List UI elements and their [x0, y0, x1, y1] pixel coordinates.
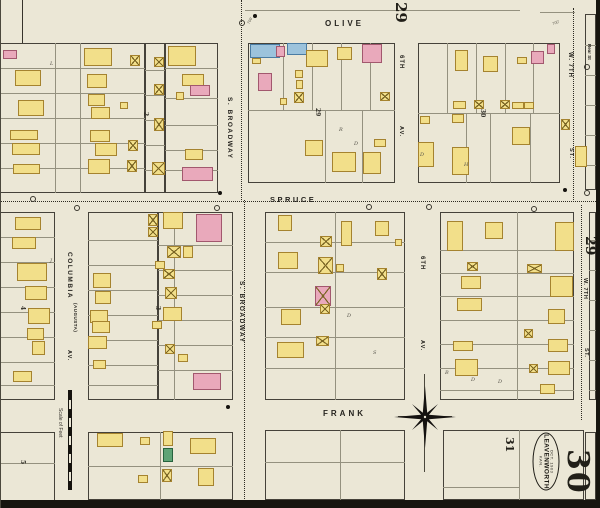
lot-line: [589, 300, 596, 301]
building-with-x: [318, 257, 333, 274]
building-with-x: [320, 236, 332, 247]
map-edge-mark: [22, 0, 23, 43]
building: [95, 291, 111, 304]
building: [483, 56, 498, 72]
building: [183, 246, 193, 258]
building-with-x: [128, 140, 138, 151]
street-label: AV.: [66, 350, 72, 361]
building: [15, 70, 41, 86]
building-with-x: [154, 84, 164, 95]
building: [178, 354, 188, 362]
sheet-number-large: 30: [560, 449, 595, 495]
street-label: FRANK: [323, 409, 366, 418]
building: [287, 43, 307, 55]
street-label: W. 7TH: [567, 52, 573, 78]
building: [12, 237, 36, 249]
publisher-stamp: OCT. 1903 LEAVENWORTH KAN.: [533, 433, 560, 491]
building: [453, 341, 473, 351]
street-label: (AUGUSTA): [73, 303, 78, 332]
building: [531, 51, 544, 64]
lot-line: [0, 68, 145, 69]
building: [461, 276, 481, 289]
building: [92, 321, 110, 333]
lot-line: [248, 110, 395, 111]
lot-line: [88, 385, 158, 386]
building: [305, 140, 323, 156]
building: [32, 341, 45, 355]
building-with-x: [130, 55, 140, 66]
building: [362, 44, 382, 63]
lot-line: [440, 273, 574, 274]
lot-line: [0, 362, 55, 363]
lot-line: [585, 135, 596, 136]
block-number: 2: [142, 112, 149, 116]
building: [140, 437, 150, 445]
building: [258, 73, 272, 91]
block-number: 29: [314, 108, 321, 116]
city-block: [265, 430, 405, 500]
block-number: 5: [19, 460, 26, 464]
building: [84, 48, 112, 66]
building: [95, 143, 117, 156]
building: [88, 159, 110, 174]
water-valve-dot: [218, 191, 222, 195]
building: [524, 102, 534, 109]
street-label: 6TH: [398, 55, 404, 69]
building: [12, 143, 40, 155]
building: [281, 309, 301, 325]
lot-line: [0, 118, 145, 119]
lot-line: [265, 307, 405, 308]
building: [25, 286, 47, 300]
building: [420, 116, 430, 124]
intersection-marker: [74, 205, 80, 211]
lot-line: [585, 105, 596, 106]
lot-line: [165, 98, 218, 99]
building: [575, 146, 587, 167]
building: [252, 58, 261, 64]
map-edge-left: [0, 0, 1, 508]
building-with-x: [152, 162, 165, 175]
building-with-x: [527, 264, 542, 273]
lot-line: [325, 110, 326, 183]
building: [193, 373, 221, 390]
building: [91, 107, 110, 119]
building: [10, 130, 38, 140]
building: [447, 221, 463, 251]
water-valve-dot: [226, 405, 230, 409]
building: [341, 221, 352, 246]
building: [485, 222, 503, 239]
street-label: OLIVE: [325, 19, 364, 28]
building: [547, 44, 555, 54]
building-with-x: [529, 364, 538, 373]
lot-line: [145, 95, 165, 96]
building-with-x: [294, 92, 304, 103]
street-label: 6TH: [419, 256, 425, 270]
building: [375, 221, 389, 236]
lot-line: [589, 330, 596, 331]
lot-line: [265, 337, 405, 338]
lot-line: [447, 43, 448, 113]
building-with-x: [162, 469, 172, 482]
dwelling-letter: R: [339, 127, 343, 133]
lot-line: [0, 385, 55, 386]
street-center-dotted-line: [241, 0, 242, 200]
building: [295, 70, 303, 78]
dwelling-letter: D: [420, 152, 424, 158]
adjacent-sheet-number-top: 29: [392, 2, 410, 23]
building: [152, 321, 162, 329]
lot-line: [88, 240, 158, 241]
building-with-x: [316, 336, 329, 346]
street-center-dotted-line: [244, 200, 245, 505]
building: [512, 102, 524, 109]
building-with-x: [524, 329, 533, 338]
intersection-marker: [584, 64, 590, 70]
intersection-marker: [584, 190, 590, 196]
dwelling-letter: J: [50, 258, 52, 264]
building: [548, 339, 568, 352]
street-label: S. BROADWAY: [238, 281, 245, 344]
building: [280, 98, 287, 105]
building: [455, 50, 468, 71]
building-with-x: [148, 227, 158, 237]
building-with-x: [561, 119, 570, 130]
building: [90, 130, 110, 142]
building: [93, 360, 106, 369]
lot-line: [165, 125, 218, 126]
building-with-x: [154, 57, 164, 67]
dimension-annotation: 700': [246, 16, 254, 25]
building: [163, 212, 183, 229]
building-with-x: [127, 160, 137, 172]
sanborn-map-canvas: 29 29 31 30 OCT. 1903 LEAVENWORTH KAN. S…: [0, 0, 600, 508]
building: [336, 264, 344, 272]
lot-line: [245, 10, 520, 11]
block-number-31: 31: [503, 437, 516, 452]
street-label: ST.: [583, 348, 589, 357]
stamp-state: KAN.: [539, 456, 543, 467]
building: [278, 252, 298, 269]
street-center-dotted-line: [573, 8, 574, 200]
dwelling-letter: L: [50, 61, 53, 67]
lot-line: [265, 242, 405, 243]
lot-line: [519, 430, 520, 500]
building-with-x: [500, 100, 510, 109]
building-with-x: [377, 268, 387, 280]
stamp-city: LEAVENWORTH: [543, 434, 550, 489]
building: [88, 94, 105, 106]
building-with-x: [163, 269, 175, 279]
building: [190, 85, 210, 96]
building: [27, 328, 44, 340]
lot-line: [265, 462, 405, 463]
scale-label: Scale of Feet: [57, 408, 63, 437]
building: [185, 149, 203, 160]
building: [332, 152, 356, 172]
building: [277, 342, 304, 358]
building-with-x: [165, 344, 175, 354]
city-block: [0, 432, 55, 508]
building: [138, 475, 148, 483]
building-with-x: [467, 262, 478, 271]
building-with-x: [380, 92, 390, 101]
street-label: SPRUCE: [270, 195, 316, 204]
block-number: 30: [479, 109, 486, 117]
street-label: ST.: [568, 148, 574, 159]
building-with-x: [315, 286, 331, 306]
building-with-x: [148, 214, 158, 226]
building: [163, 431, 173, 446]
building: [18, 100, 44, 116]
street-label: COLUMBIA: [66, 252, 73, 299]
building: [363, 152, 381, 174]
building: [93, 273, 111, 288]
dimension-annotation: 700': [551, 19, 560, 26]
street-label: S. BROADWAY: [226, 97, 233, 160]
building: [97, 433, 123, 447]
building: [182, 167, 213, 181]
building: [395, 239, 402, 246]
lot-line: [165, 68, 218, 69]
building-with-x: [320, 304, 330, 314]
lot-line: [589, 390, 596, 391]
map-edge-bottom: [0, 500, 600, 508]
building: [548, 309, 565, 324]
building: [13, 371, 32, 382]
building: [452, 114, 464, 123]
street-label: AV.: [419, 340, 425, 351]
intersection-marker: [366, 204, 372, 210]
building: [455, 359, 478, 376]
building: [276, 46, 285, 57]
scale-bar: [68, 390, 72, 490]
dwelling-letter: B: [445, 370, 449, 376]
building: [457, 298, 482, 311]
building: [28, 308, 50, 324]
intersection-marker: [426, 204, 432, 210]
dwelling-letter: H: [464, 162, 468, 168]
building: [296, 80, 303, 89]
lot-line: [443, 487, 519, 488]
building: [15, 217, 41, 230]
building: [3, 50, 17, 59]
building: [550, 276, 573, 297]
lot-line: [158, 370, 233, 371]
building: [278, 215, 292, 231]
building: [555, 222, 574, 251]
building-with-x: [474, 100, 484, 109]
lot-line: [585, 75, 596, 76]
building: [452, 147, 469, 175]
intersection-marker: [239, 20, 245, 26]
lot-line: [88, 265, 158, 266]
map-edge-right: [596, 0, 600, 508]
lot-line: [145, 145, 165, 146]
building: [512, 127, 530, 145]
street-label: AV.: [398, 126, 404, 137]
building: [163, 307, 182, 321]
lot-line: [530, 113, 531, 183]
intersection-marker: [214, 205, 220, 211]
stamp-date: OCT. 1903: [550, 450, 554, 474]
intersection-marker: [30, 196, 36, 202]
lot-line: [335, 212, 336, 400]
lot-line: [174, 212, 175, 400]
lot-line: [589, 360, 596, 361]
building: [13, 164, 40, 174]
building-with-x: [165, 287, 177, 299]
building: [168, 46, 196, 66]
water-valve-dot: [253, 14, 257, 18]
lot-line: [0, 463, 55, 464]
building: [155, 261, 165, 269]
dwelling-letter: D: [354, 141, 358, 147]
lot-line: [265, 368, 405, 369]
lot-line: [418, 113, 560, 114]
lot-line: [340, 430, 341, 500]
building: [337, 47, 352, 60]
lot-line: [540, 12, 575, 13]
lot-line: [88, 466, 233, 467]
lot-line: [145, 70, 165, 71]
building: [176, 92, 184, 100]
building: [196, 214, 222, 242]
dwelling-letter: D: [471, 377, 475, 383]
building: [120, 102, 128, 109]
building: [374, 139, 386, 147]
compass-rose-icon: [393, 385, 457, 449]
building: [517, 57, 527, 64]
building: [548, 361, 570, 375]
dwelling-letter: D: [498, 379, 502, 385]
street-label: W. 7TH: [582, 278, 588, 299]
dwelling-letter: D: [347, 313, 351, 319]
lot-line: [589, 270, 596, 271]
building: [88, 336, 107, 349]
building: [87, 74, 107, 88]
building: [163, 448, 173, 462]
building: [17, 263, 47, 281]
lot-line: [55, 43, 56, 193]
street-label: Rear St: [587, 44, 592, 60]
lot-line: [517, 212, 518, 400]
block-number: 3: [154, 306, 161, 310]
building: [190, 438, 216, 454]
building: [306, 50, 328, 67]
block-number: 4: [19, 306, 26, 310]
building: [198, 468, 214, 486]
dwelling-letter: S: [373, 350, 376, 356]
building: [453, 101, 466, 109]
building-with-x: [167, 246, 181, 258]
lot-line: [80, 43, 81, 193]
building-with-x: [154, 118, 164, 131]
lot-line: [0, 93, 145, 94]
water-valve-dot: [563, 188, 567, 192]
lot-line: [490, 113, 491, 183]
building: [540, 384, 555, 394]
intersection-marker: [531, 206, 537, 212]
